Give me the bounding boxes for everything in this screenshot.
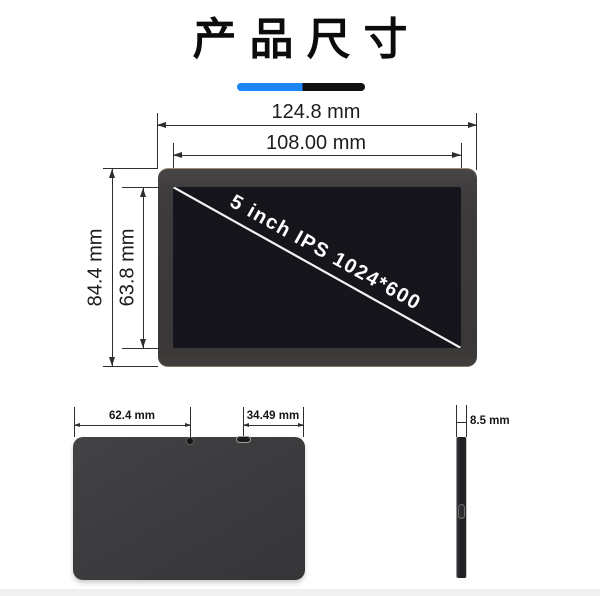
dim-outer-height-label: 84.4 mm [85,208,108,328]
front-view-screen: 5 inch IPS 1024*600 [173,187,461,348]
usbc-port-icon [236,436,251,443]
dim-screen-width-label: 108.00 mm [216,132,416,155]
dim-outer-width-line [157,125,477,126]
dim-thickness-label: 8.5 mm [470,415,510,427]
dim-back-right-line [243,425,304,426]
dim-screen-width-line [173,155,461,156]
screen-diagonal-line [173,187,461,348]
dim-screen-height-label: 63.8 mm [117,208,140,328]
extension-line [103,366,158,367]
dim-back-right-label: 34.49 mm [223,410,323,422]
extension-line [456,405,457,437]
bottom-strip [0,589,600,596]
title-underline [237,83,365,91]
product-dimensions-diagram: 产品尺寸 124.8 mm 108.00 mm 84.4 mm 63.8 mm … [0,0,600,596]
dim-outer-width-label: 124.8 mm [216,101,416,124]
dim-back-left-label: 62.4 mm [82,410,182,422]
back-view-body [73,437,305,580]
dim-back-left-line [74,425,191,426]
extension-line [466,405,467,437]
side-usbc-slot-icon [458,504,465,519]
dim-screen-height-line [143,188,144,348]
dim-outer-height-line [112,169,113,366]
mic-hole-icon [186,437,194,445]
page-title: 产品尺寸 [0,14,600,67]
dim-thickness-line [456,422,467,423]
